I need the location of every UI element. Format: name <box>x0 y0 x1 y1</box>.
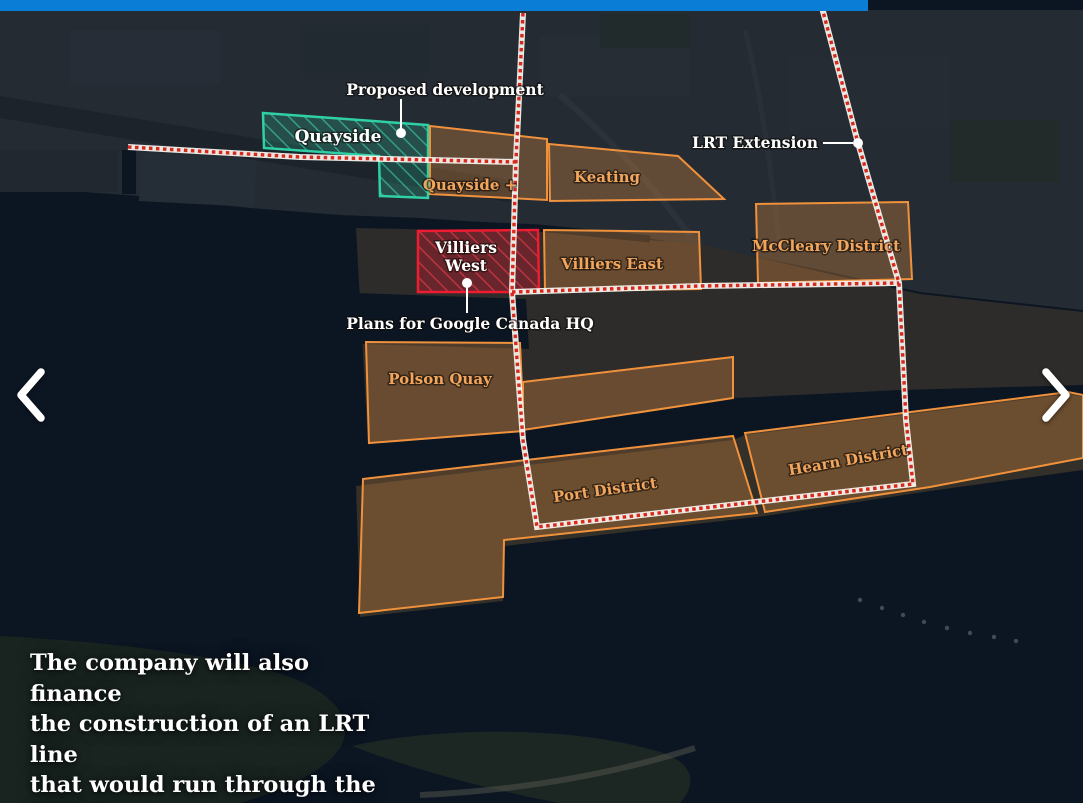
label-villiers-west-line1: Villiers <box>434 238 497 257</box>
slide-caption: The company will also finance the constr… <box>30 648 390 803</box>
next-slide-button[interactable] <box>1033 366 1079 426</box>
google-hq-dot <box>462 278 472 288</box>
map-slide: Proposed development LRT Extension Plans… <box>0 0 1083 803</box>
lrt-extension-dot <box>853 138 863 148</box>
label-mccleary: McCleary District <box>752 237 900 255</box>
proposed-development-dot <box>396 128 406 138</box>
caption-line: the construction of an LRT line <box>30 709 390 770</box>
annotation-google-hq: Plans for Google Canada HQ <box>346 314 594 333</box>
label-polson-quay: Polson Quay <box>388 370 493 388</box>
chevron-right-icon <box>1036 412 1076 427</box>
prev-slide-button[interactable] <box>8 366 54 426</box>
label-quayside: Quayside <box>295 127 382 147</box>
label-quayside-plus: Quayside + <box>423 176 517 194</box>
annotation-proposed-development: Proposed development <box>346 80 544 99</box>
chevron-left-icon <box>11 412 51 427</box>
progress-bar <box>0 0 868 11</box>
district-polson-quay <box>366 342 524 443</box>
label-keating: Keating <box>574 168 641 186</box>
annotation-lrt-extension: LRT Extension <box>692 133 818 152</box>
caption-line: that would run through the <box>30 770 390 801</box>
label-villiers-east: Villiers East <box>560 255 663 273</box>
caption-line: The company will also finance <box>30 648 390 709</box>
label-villiers-west-line2: West <box>444 256 488 275</box>
